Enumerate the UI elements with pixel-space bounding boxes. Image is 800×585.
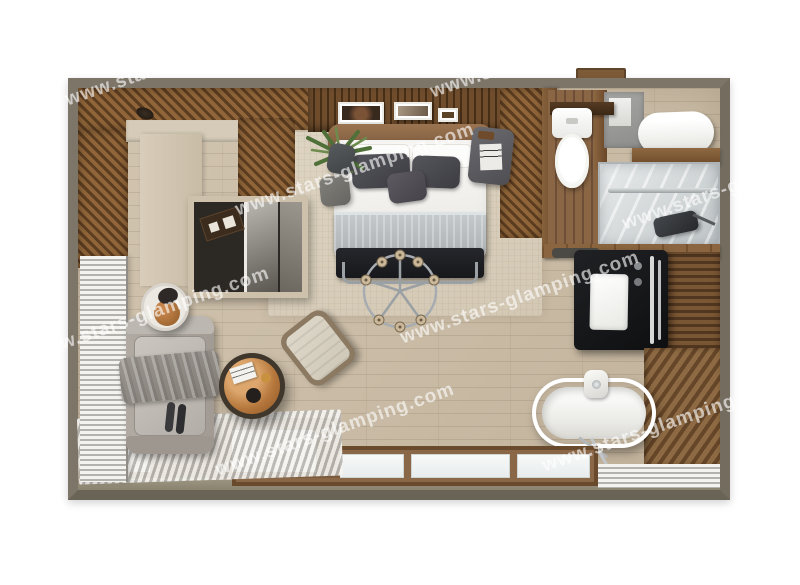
shower-enclosure <box>598 162 720 248</box>
faucet-knob <box>634 278 642 286</box>
copper-coffee-table <box>219 353 285 419</box>
wardrobe-sign <box>199 206 244 241</box>
decor-bowl <box>246 388 261 403</box>
wall-wood-slats-right <box>666 252 720 352</box>
bed-blanket <box>334 212 486 252</box>
floorplan-page: www.stars-glamping.com www.stars-glampin… <box>0 0 800 585</box>
vanity-sink <box>590 274 629 331</box>
window-pane <box>517 454 590 478</box>
wall-art-frame <box>394 102 432 120</box>
side-table <box>141 283 189 331</box>
right-corner-blinds <box>598 464 720 488</box>
sofa-armrest <box>126 436 214 454</box>
sofa <box>126 316 214 454</box>
plant-stool <box>319 175 352 208</box>
wall-wood-slats-left <box>78 130 128 268</box>
swivel-chair-icon <box>358 249 442 333</box>
wardrobe-glass-door <box>244 202 278 292</box>
toilet-bowl <box>555 134 589 188</box>
throw-blanket <box>118 350 222 405</box>
window-pane <box>411 454 509 478</box>
shower-rail <box>608 188 714 193</box>
towel-bar <box>650 256 654 344</box>
wardrobe-mirror <box>280 202 302 292</box>
cabin-floorplan <box>68 78 730 500</box>
wall-art-frame <box>338 102 384 124</box>
towel-bar <box>658 260 661 340</box>
wall-art-frame <box>438 108 458 122</box>
pillow-accent <box>386 170 428 205</box>
black-vanity <box>574 250 668 350</box>
swivel-chair <box>358 249 442 333</box>
decor-bottle <box>261 373 271 383</box>
faucet-knob <box>634 262 642 270</box>
tub-faucet <box>584 370 608 398</box>
wardrobe-nook <box>188 196 308 298</box>
nightstand <box>467 126 515 186</box>
